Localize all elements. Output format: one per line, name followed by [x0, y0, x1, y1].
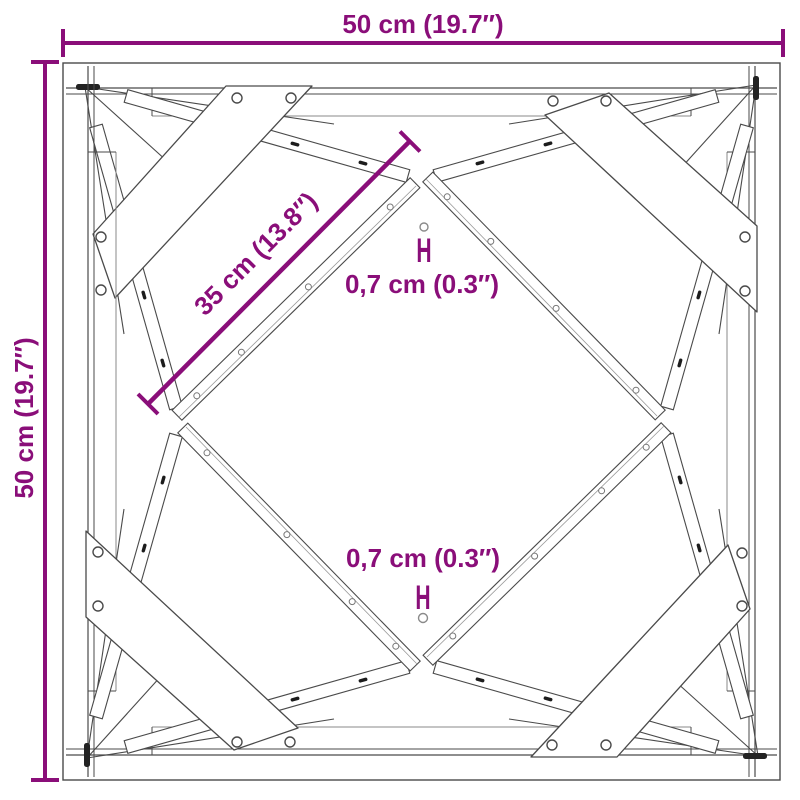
thickness-h-marker-top: H	[416, 231, 431, 269]
thickness-h-marker-bottom: H	[415, 578, 430, 616]
thickness-label-top: 0,7 cm (0.3″)	[345, 269, 499, 299]
frame-drawing	[63, 63, 780, 780]
width-dimension-label: 50 cm (19.7″)	[342, 9, 503, 39]
product-dimension-diagram: 50 cm (19.7″) 50 cm (19.7″) 35 cm (13.8″…	[0, 0, 800, 800]
height-dimension-label: 50 cm (19.7″)	[9, 337, 39, 498]
thickness-label-bottom: 0,7 cm (0.3″)	[346, 543, 500, 573]
